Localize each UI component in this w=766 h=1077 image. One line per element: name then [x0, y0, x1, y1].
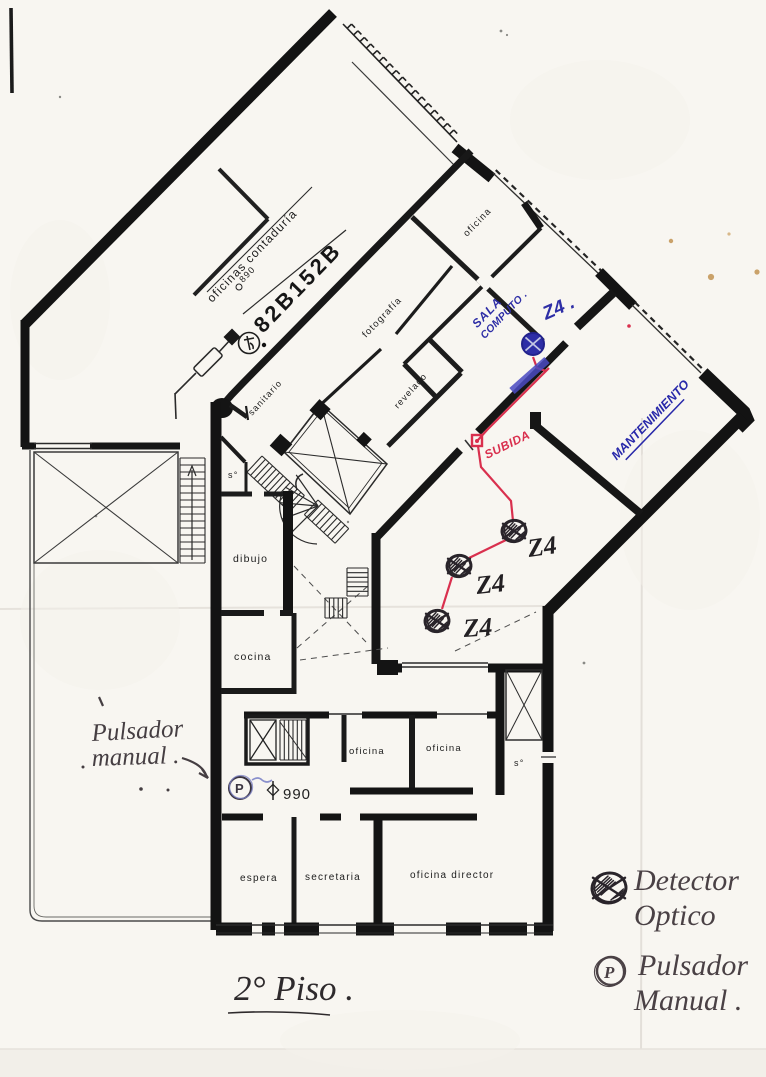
svg-text:cocina: cocina [234, 651, 272, 663]
svg-text:2° Piso .: 2° Piso . [234, 969, 354, 1008]
svg-text:Z4: Z4 [525, 530, 559, 563]
svg-text:manual .: manual . [91, 742, 179, 772]
svg-text:oficina director: oficina director [410, 870, 494, 881]
svg-text:oficina: oficina [349, 746, 385, 757]
svg-text:Detector: Detector [633, 864, 739, 897]
svg-text:Pulsador: Pulsador [637, 949, 748, 982]
svg-text:s°: s° [514, 758, 525, 768]
svg-text:espera: espera [240, 873, 278, 884]
svg-text:Manual .: Manual . [633, 984, 742, 1017]
svg-text:s°: s° [228, 470, 239, 480]
svg-text:990: 990 [283, 786, 311, 803]
svg-text:P: P [235, 781, 244, 796]
svg-text:dibujo: dibujo [233, 553, 268, 565]
svg-text:Z4: Z4 [461, 612, 493, 643]
svg-text:secretaria: secretaria [305, 872, 361, 883]
svg-text:oficina: oficina [426, 743, 462, 754]
svg-text:Optico: Optico [634, 899, 716, 932]
svg-text:Z4: Z4 [474, 568, 507, 600]
svg-text:P: P [603, 963, 615, 982]
